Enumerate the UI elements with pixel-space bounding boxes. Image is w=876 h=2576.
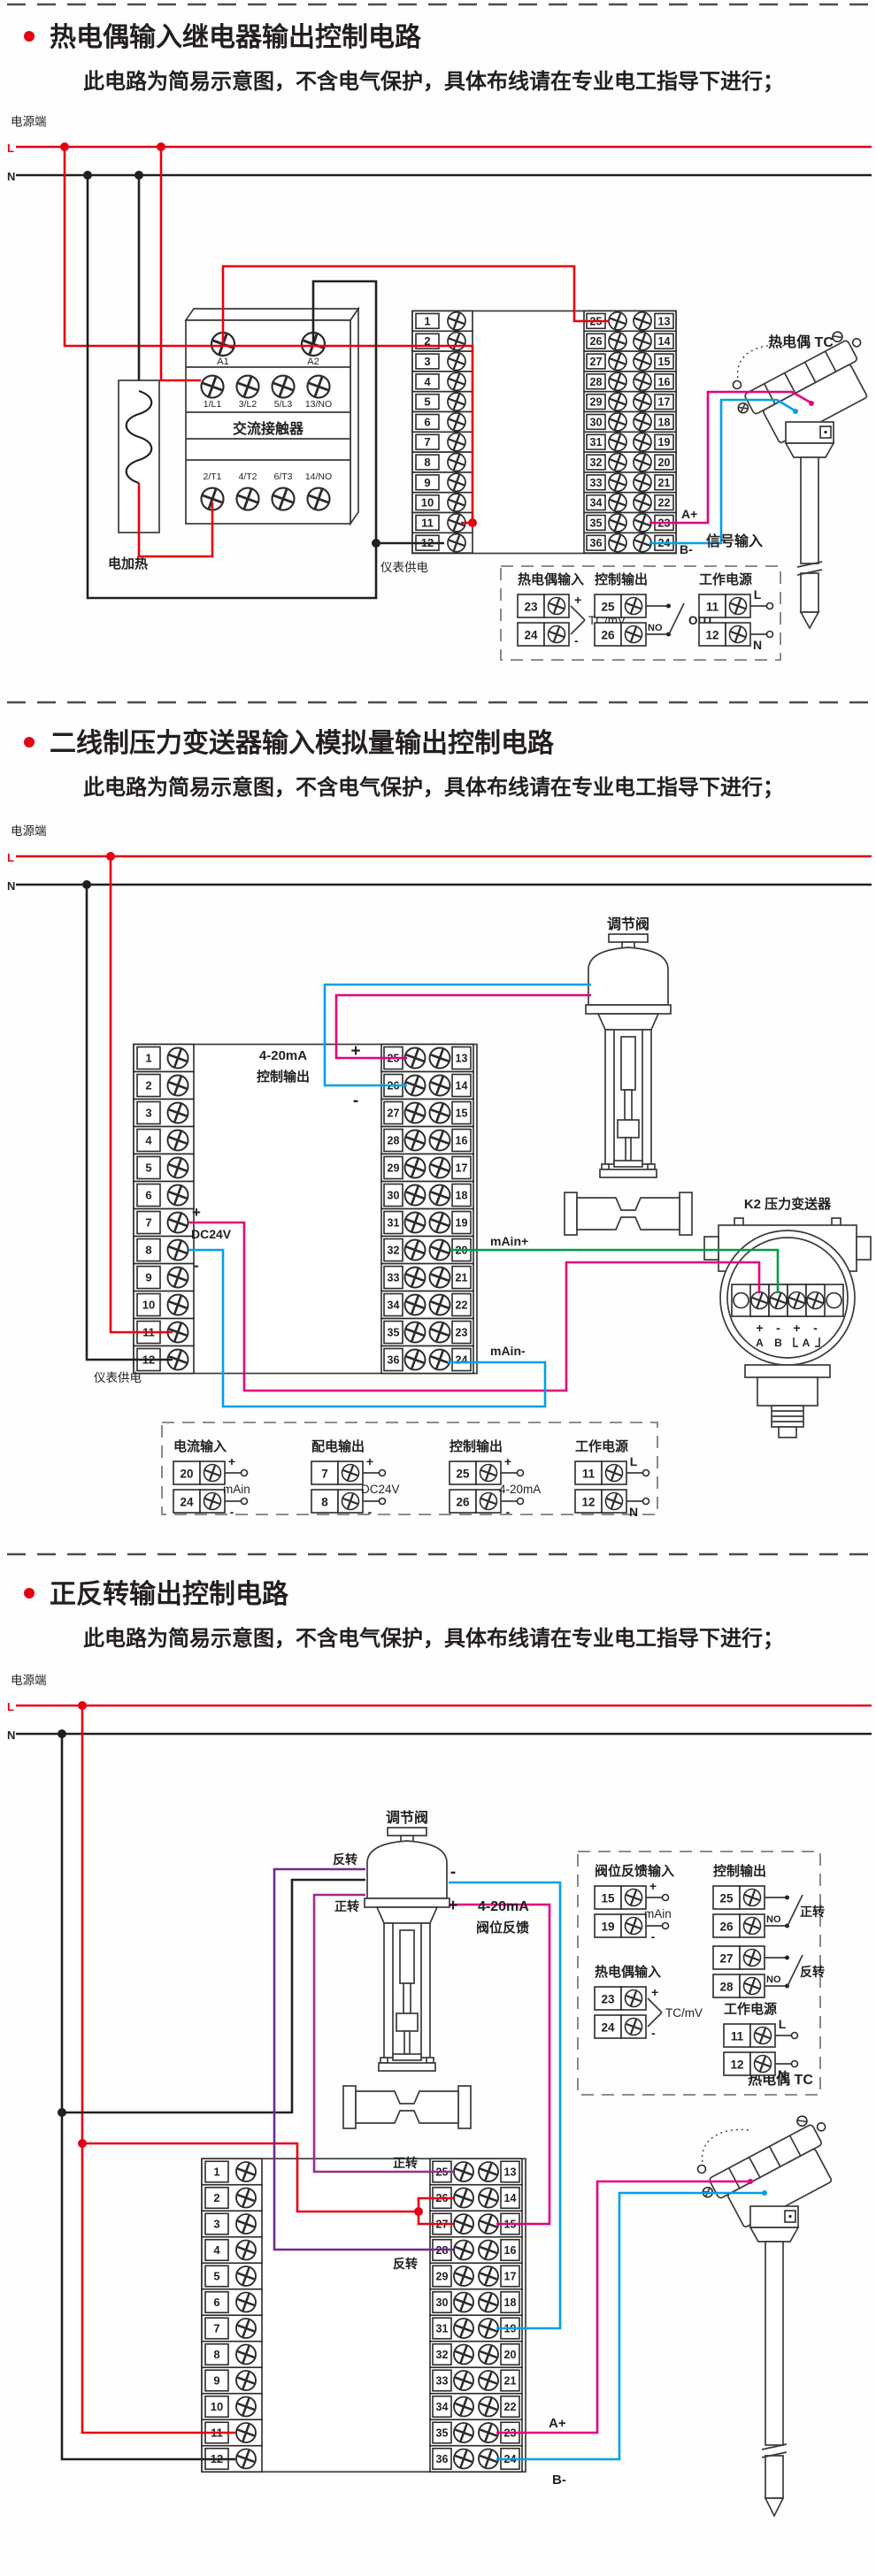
legend-tag: TC/mV [665, 2006, 703, 2020]
legend-sign: N [753, 638, 762, 652]
terminal-strip-right: 2513261427152816291730183119322033213422… [381, 1045, 473, 1374]
reverse-label-valve: 反转 [333, 1852, 357, 1867]
contactor-terminal-label: 14/NO [305, 471, 332, 482]
terminal-number: 17 [658, 396, 671, 409]
legend-sign: - [506, 1505, 511, 1519]
terminal-number: 29 [590, 396, 603, 409]
minus-sign: - [194, 1257, 199, 1274]
terminal-number: 10 [142, 1299, 155, 1312]
terminal-number: 28 [388, 1135, 400, 1147]
power-terminal-label: 电源端 [11, 1674, 47, 1687]
legend-title: 阀位反馈输入 [595, 1863, 674, 1879]
transmitter-label: K2 压力变送器 [744, 1196, 832, 1212]
main-minus-label: mAin- [490, 1344, 526, 1358]
legend-group-control-output: 控制输出2526+-4-20mA [450, 1438, 541, 1519]
transmitter-terminal-strip [732, 1284, 843, 1316]
terminal-number: 26 [590, 335, 603, 348]
terminal-number: 18 [456, 1190, 468, 1202]
terminal-number: 5 [213, 2270, 219, 2283]
diagram-canvas: 热电偶输入继电器输出控制电路 此电路为简易示意图，不含电气保护，具体布线请在专业… [0, 0, 876, 2576]
control-valve-icon [565, 934, 692, 1235]
terminal-strip-left: 123456789101112 [202, 2158, 262, 2472]
legend-sign: + [649, 1879, 657, 1893]
legend-sign: - [368, 1505, 373, 1519]
legend-tag: DC24V [361, 1483, 400, 1496]
terminal-number: 33 [436, 2375, 449, 2388]
contactor-terminal-label: 5/L3 [274, 399, 293, 410]
terminal-number: 2 [213, 2191, 219, 2204]
section-1: 热电偶输入继电器输出控制电路 此电路为简易示意图，不含电气保护，具体布线请在专业… [7, 23, 876, 660]
legend-no-label: NO [766, 1914, 781, 1925]
open-terminal-icon [792, 2033, 798, 2039]
open-terminal-icon [518, 1499, 524, 1505]
tx-sign: + [756, 1321, 763, 1335]
terminal-number: 36 [388, 1354, 400, 1367]
plus-sign: + [192, 1204, 201, 1221]
forward-label-block: 正转 [393, 2156, 418, 2170]
terminal-number: 21 [456, 1272, 468, 1284]
terminal-number: 9 [424, 476, 430, 489]
section-2: 二线制压力变送器输入模拟量输出控制电路 此电路为简易示意图，不含电气保护，具体布… [7, 728, 872, 1519]
legend-terminal-number: 25 [601, 601, 615, 614]
legend-title: 控制输出 [595, 571, 648, 587]
legend-group-power: 工作电源1112LN [724, 2001, 798, 2081]
terminal-number: 8 [213, 2348, 219, 2361]
legend-terminal-number: 24 [180, 1496, 194, 1509]
tx-sign: - [776, 1321, 780, 1335]
control-output-label2: 控制输出 [257, 1069, 310, 1085]
terminal-number: 9 [213, 2374, 219, 2388]
forward-label-valve: 正转 [334, 1899, 359, 1913]
terminal-number: 1 [145, 1052, 151, 1065]
terminal-number: 31 [436, 2323, 449, 2335]
neutral-label: N [7, 170, 15, 183]
contactor-a2-label: A2 [307, 356, 319, 367]
terminal-number: 22 [504, 2401, 517, 2413]
wire-neutral-to-valve [62, 1880, 365, 2112]
contactor-terminal-label: 4/T2 [238, 471, 257, 482]
terminal-number: 30 [388, 1190, 400, 1202]
legend-title: 电流输入 [173, 1438, 227, 1454]
terminal-number: 36 [436, 2453, 449, 2465]
terminal-number: 24 [456, 1354, 468, 1367]
legend-group-power: 工作电源1112LN [575, 1438, 649, 1519]
terminal-strip-right: 2513261427152816291730183119322033213422… [584, 310, 676, 553]
legend-sign: N [778, 2067, 787, 2081]
tx-letter: A [756, 1337, 764, 1349]
terminal-number: 15 [456, 1108, 468, 1120]
legend-link-line [571, 606, 585, 620]
terminal-number: 14 [456, 1080, 468, 1092]
terminal-number: 14 [658, 335, 671, 348]
valve-label: 调节阀 [386, 1809, 428, 1826]
power-terminal-label: 电源端 [11, 824, 47, 838]
terminal-number: 34 [436, 2401, 449, 2413]
legend-terminal-number: 26 [601, 629, 615, 642]
legend-tag: mAin [223, 1483, 250, 1496]
legend-sign: + [366, 1454, 373, 1468]
terminal-number: 4 [213, 2243, 220, 2257]
terminal-number: 4 [145, 1134, 152, 1147]
legend-group-feedback-input: 阀位反馈输入1519+-mAin [595, 1863, 674, 1943]
terminal-number: 6 [145, 1189, 151, 1202]
terminal-number: 19 [658, 436, 671, 448]
main-plus-label: mAin+ [490, 1234, 528, 1248]
legend-sign: L [779, 2017, 787, 2031]
open-terminal-icon [663, 1895, 669, 1901]
legend-tag: 正转 [800, 1905, 825, 1919]
legend-terminal-number: 11 [706, 601, 719, 614]
section-1-title: 热电偶输入继电器输出控制电路 [50, 23, 422, 52]
terminal-number: 21 [504, 2375, 517, 2388]
legend-group-power: 工作电源1112LN [699, 571, 773, 652]
open-terminal-icon [643, 1470, 649, 1476]
terminal-number: 14 [504, 2192, 517, 2204]
tx-sign: - [813, 1321, 818, 1335]
legend-tag: 反转 [800, 1965, 825, 1979]
terminal-number: 7 [145, 1216, 151, 1230]
legend-sign: - [230, 1505, 234, 1519]
open-terminal-icon [767, 632, 773, 638]
thermocouple-probe [797, 457, 822, 628]
thermocouple-probe [762, 2242, 787, 2516]
b-minus-label: B- [552, 2472, 566, 2488]
terminal-number: 15 [658, 356, 671, 368]
terminal-number: 27 [590, 356, 603, 368]
a-plus-label: A+ [681, 507, 697, 521]
legend-title: 控制输出 [450, 1438, 503, 1454]
terminal-number: 5 [424, 395, 430, 409]
legend-tag: 4-20mA [499, 1483, 541, 1496]
legend-link-line [648, 2012, 662, 2027]
b-minus-label: B- [680, 542, 693, 556]
terminal-number: 18 [504, 2296, 517, 2309]
terminal-number: 30 [436, 2296, 449, 2309]
legend-terminal-number: 7 [321, 1468, 328, 1481]
terminal-number: 21 [658, 477, 671, 489]
open-terminal-icon [792, 2061, 798, 2067]
terminal-number: 10 [211, 2400, 223, 2413]
open-terminal-icon [767, 603, 773, 609]
terminal-number: 33 [590, 477, 603, 489]
legend-group-control-output: 控制输出2526NOOUT [595, 571, 714, 646]
terminal-number: 35 [436, 2427, 449, 2440]
live-label: L [7, 1700, 14, 1713]
contactor-a1-label: A1 [217, 356, 228, 367]
legend-group-reverse-output: 2728NO反转 [713, 1946, 825, 1997]
legend-terminal-number: 23 [601, 1993, 615, 2006]
contactor-terminal-label: 6/T3 [273, 471, 292, 482]
wire-tc-minus [496, 2193, 763, 2459]
legend-title: 控制输出 [713, 1863, 766, 1879]
legend-terminal-number: 8 [321, 1496, 328, 1509]
open-terminal-icon [518, 1470, 524, 1476]
open-terminal-icon [242, 1470, 248, 1476]
terminal-number: 31 [590, 436, 603, 448]
terminal-number: 6 [424, 415, 430, 428]
legend-terminal-number: 24 [601, 2021, 615, 2035]
control-output-label1: 4-20mA [259, 1048, 307, 1063]
legend-sign: L [754, 587, 762, 602]
heater-label: 电加热 [108, 556, 148, 571]
terminal-number: 29 [388, 1162, 400, 1175]
minus-sign: - [450, 1863, 456, 1882]
terminal-number: 3 [424, 355, 430, 368]
minus-sign: - [353, 1092, 358, 1110]
legend-title: 工作电源 [724, 2001, 777, 2017]
contactor-terminal-label: 3/L2 [239, 399, 257, 410]
section-2-title: 二线制压力变送器输入模拟量输出控制电路 [50, 728, 555, 758]
power-terminal-label: 电源端 [11, 115, 47, 128]
legend-terminal-number: 23 [524, 601, 538, 614]
open-terminal-icon [380, 1470, 386, 1476]
wiring-manual-page: 热电偶输入继电器输出控制电路 此电路为简易示意图，不含电气保护，具体布线请在专业… [0, 0, 876, 2576]
legend-sign: N [629, 1505, 638, 1519]
legend-group-current-input: 电流输入2024+-mAin [173, 1438, 250, 1519]
legend-sign: + [504, 1454, 511, 1468]
terminal-number: 18 [658, 416, 671, 428]
legend-terminal-number: 25 [719, 1892, 734, 1905]
terminal-strip-left: 123456789101112 [134, 1045, 194, 1374]
legend-no-label: NO [766, 1974, 781, 1985]
legend-terminal-number: 25 [456, 1468, 470, 1481]
legend-terminal-number: 28 [719, 1981, 734, 1994]
terminal-number: 22 [658, 497, 671, 510]
legend-terminal-number: 15 [601, 1892, 615, 1905]
terminal-strip-right: 2513261427152816291730183119322033213422… [430, 2158, 522, 2472]
terminal-number: 1 [424, 314, 430, 327]
terminal-number: 33 [388, 1272, 400, 1284]
open-terminal-icon [380, 1499, 386, 1505]
legend-terminal-number: 11 [582, 1468, 596, 1481]
plus-sign: + [448, 1897, 457, 1915]
legend-terminal-number: 26 [456, 1496, 470, 1509]
terminal-number: 29 [436, 2271, 449, 2283]
bullet-icon [24, 737, 35, 747]
bullet-icon [24, 31, 35, 42]
legend-sign: - [574, 633, 579, 648]
legend-terminal-number: 12 [730, 2058, 743, 2072]
reverse-label-block: 反转 [393, 2257, 418, 2271]
terminal-number: 5 [145, 1161, 151, 1175]
open-terminal-icon [663, 1923, 669, 1929]
legend-title: 热电偶输入 [595, 1964, 661, 1980]
terminal-number: 11 [421, 516, 434, 529]
legend-sign: + [651, 1985, 658, 1999]
section-3-title: 正反转输出控制电路 [50, 1580, 289, 1609]
legend-terminal-number: 12 [581, 1496, 595, 1509]
legend-terminal-number: 20 [180, 1468, 193, 1481]
terminal-number: 16 [504, 2244, 517, 2257]
meter-supply-label: 仪表供电 [94, 1371, 142, 1384]
tx-letter: B [774, 1337, 782, 1349]
contactor-terminal-label: 13/NO [305, 399, 332, 410]
legend-tag: mAin [644, 1907, 672, 1920]
terminal-number: 4 [424, 375, 431, 388]
terminal-number: 30 [590, 416, 603, 428]
section-1-subtitle: 此电路为简易示意图，不含电气保护，具体布线请在专业电工指导下进行； [83, 69, 784, 94]
valve-label: 调节阀 [607, 916, 649, 932]
terminal-number: 34 [388, 1299, 400, 1312]
terminal-number: 16 [456, 1135, 468, 1147]
bullet-icon [24, 1588, 35, 1598]
terminal-number: 20 [504, 2349, 517, 2361]
open-terminal-icon [242, 1499, 248, 1505]
legend-group-tc-input: 热电偶输入2324+-TC/mV [595, 1964, 703, 2040]
terminal-number: 32 [436, 2349, 449, 2361]
terminal-number: 36 [590, 537, 603, 549]
legend-terminal-number: 19 [601, 1920, 614, 1934]
legend-title: 配电输出 [311, 1438, 365, 1454]
terminal-number: 2 [145, 1079, 151, 1092]
legend-title: 热电偶输入 [518, 571, 584, 587]
terminal-number: 8 [424, 456, 430, 469]
neutral-label: N [7, 879, 15, 893]
live-label: L [7, 142, 14, 155]
terminal-number: 13 [456, 1053, 468, 1065]
contactor-illustration: A1 A2 1/L1 3/L2 5/L3 13/NO 交流接触器 2/T1 4/… [186, 309, 358, 524]
terminal-number: 1 [213, 2166, 219, 2179]
terminal-number: 8 [145, 1244, 151, 1257]
terminal-number: 3 [145, 1107, 151, 1120]
legend-link-line [669, 603, 684, 634]
terminal-number: 17 [504, 2271, 517, 2283]
legend-terminal-number: 12 [705, 629, 718, 642]
legend-no-label: NO [648, 623, 663, 633]
open-terminal-icon [643, 1499, 649, 1505]
terminal-number: 22 [456, 1299, 468, 1312]
terminal-number: 27 [388, 1108, 400, 1120]
legend-terminal-number: 11 [731, 2030, 744, 2043]
contactor-terminal-label: 2/T1 [203, 471, 221, 482]
terminal-number: 6 [213, 2296, 219, 2309]
terminal-number: 35 [590, 517, 603, 529]
legend-title: 工作电源 [699, 571, 752, 587]
terminal-number: 16 [658, 376, 671, 388]
terminal-number: 17 [456, 1162, 468, 1175]
terminal-number: 20 [658, 456, 671, 469]
terminal-number: 9 [145, 1271, 151, 1284]
terminal-number: 13 [658, 315, 671, 327]
contact-dot [666, 604, 671, 609]
plus-sign: + [350, 1042, 360, 1061]
legend-sign: + [228, 1454, 235, 1468]
contact-dot [785, 1956, 789, 1960]
feedback-label2: 阀位反馈 [476, 1920, 529, 1936]
legend-sign: - [651, 1929, 656, 1943]
terminal-number: 19 [456, 1217, 468, 1230]
a-plus-label: A+ [549, 2416, 566, 2431]
legend-sign: - [651, 2026, 656, 2040]
section-3: 正反转输出控制电路 此电路为简易示意图，不含电气保护，具体布线请在专业电工指导下… [7, 1580, 872, 2516]
legend-terminal-number: 27 [719, 1952, 733, 1966]
terminal-number: 7 [424, 435, 430, 448]
section-2-subtitle: 此电路为简易示意图，不含电气保护，具体布线请在专业电工指导下进行； [83, 775, 784, 800]
signal-input-label: 信号输入 [706, 533, 763, 549]
legend-link-line [648, 1998, 662, 2012]
contactor-name: 交流接触器 [233, 420, 304, 437]
terminal-number: 34 [590, 497, 603, 510]
legend-sign: L [630, 1454, 638, 1468]
feedback-label1: 4-20mA [478, 1899, 529, 1914]
thermocouple-icon [693, 2108, 850, 2242]
contactor-terminal-label: 1/L1 [204, 399, 222, 410]
section-3-subtitle: 此电路为简易示意图，不含电气保护，具体布线请在专业电工指导下进行； [83, 1626, 784, 1651]
tx-sign: + [793, 1321, 800, 1335]
neutral-label: N [7, 1729, 15, 1742]
terminal-number: 7 [213, 2322, 219, 2335]
terminal-number: 32 [388, 1245, 400, 1257]
legend-sign: + [574, 593, 581, 607]
tc-title: 热电偶 TC [768, 333, 834, 350]
legend-link-line [571, 620, 585, 634]
legend-group-dc-output: 配电输出78+-DC24V [311, 1438, 400, 1519]
terminal-number: 32 [590, 456, 603, 469]
wire-tc-plus [496, 2181, 749, 2433]
terminal-number: 23 [456, 1327, 468, 1339]
legend-title: 工作电源 [575, 1438, 628, 1454]
terminal-number: 35 [388, 1327, 400, 1339]
legend-group-forward-output: 控制输出2526NO正转 [713, 1863, 825, 1937]
legend-terminal-number: 26 [719, 1920, 734, 1934]
terminal-number: 13 [504, 2166, 517, 2179]
contact-dot [785, 1896, 789, 1900]
terminal-number: 10 [421, 496, 434, 510]
legend-terminal-number: 24 [524, 629, 538, 642]
live-label: L [7, 851, 14, 864]
dc24v-label: DC24V [191, 1227, 232, 1241]
terminal-number: 3 [213, 2218, 219, 2231]
tx-letter: A [803, 1337, 811, 1349]
meter-supply-label: 仪表供电 [380, 561, 428, 574]
terminal-number: 31 [388, 1217, 400, 1230]
terminal-number: 28 [590, 376, 603, 388]
